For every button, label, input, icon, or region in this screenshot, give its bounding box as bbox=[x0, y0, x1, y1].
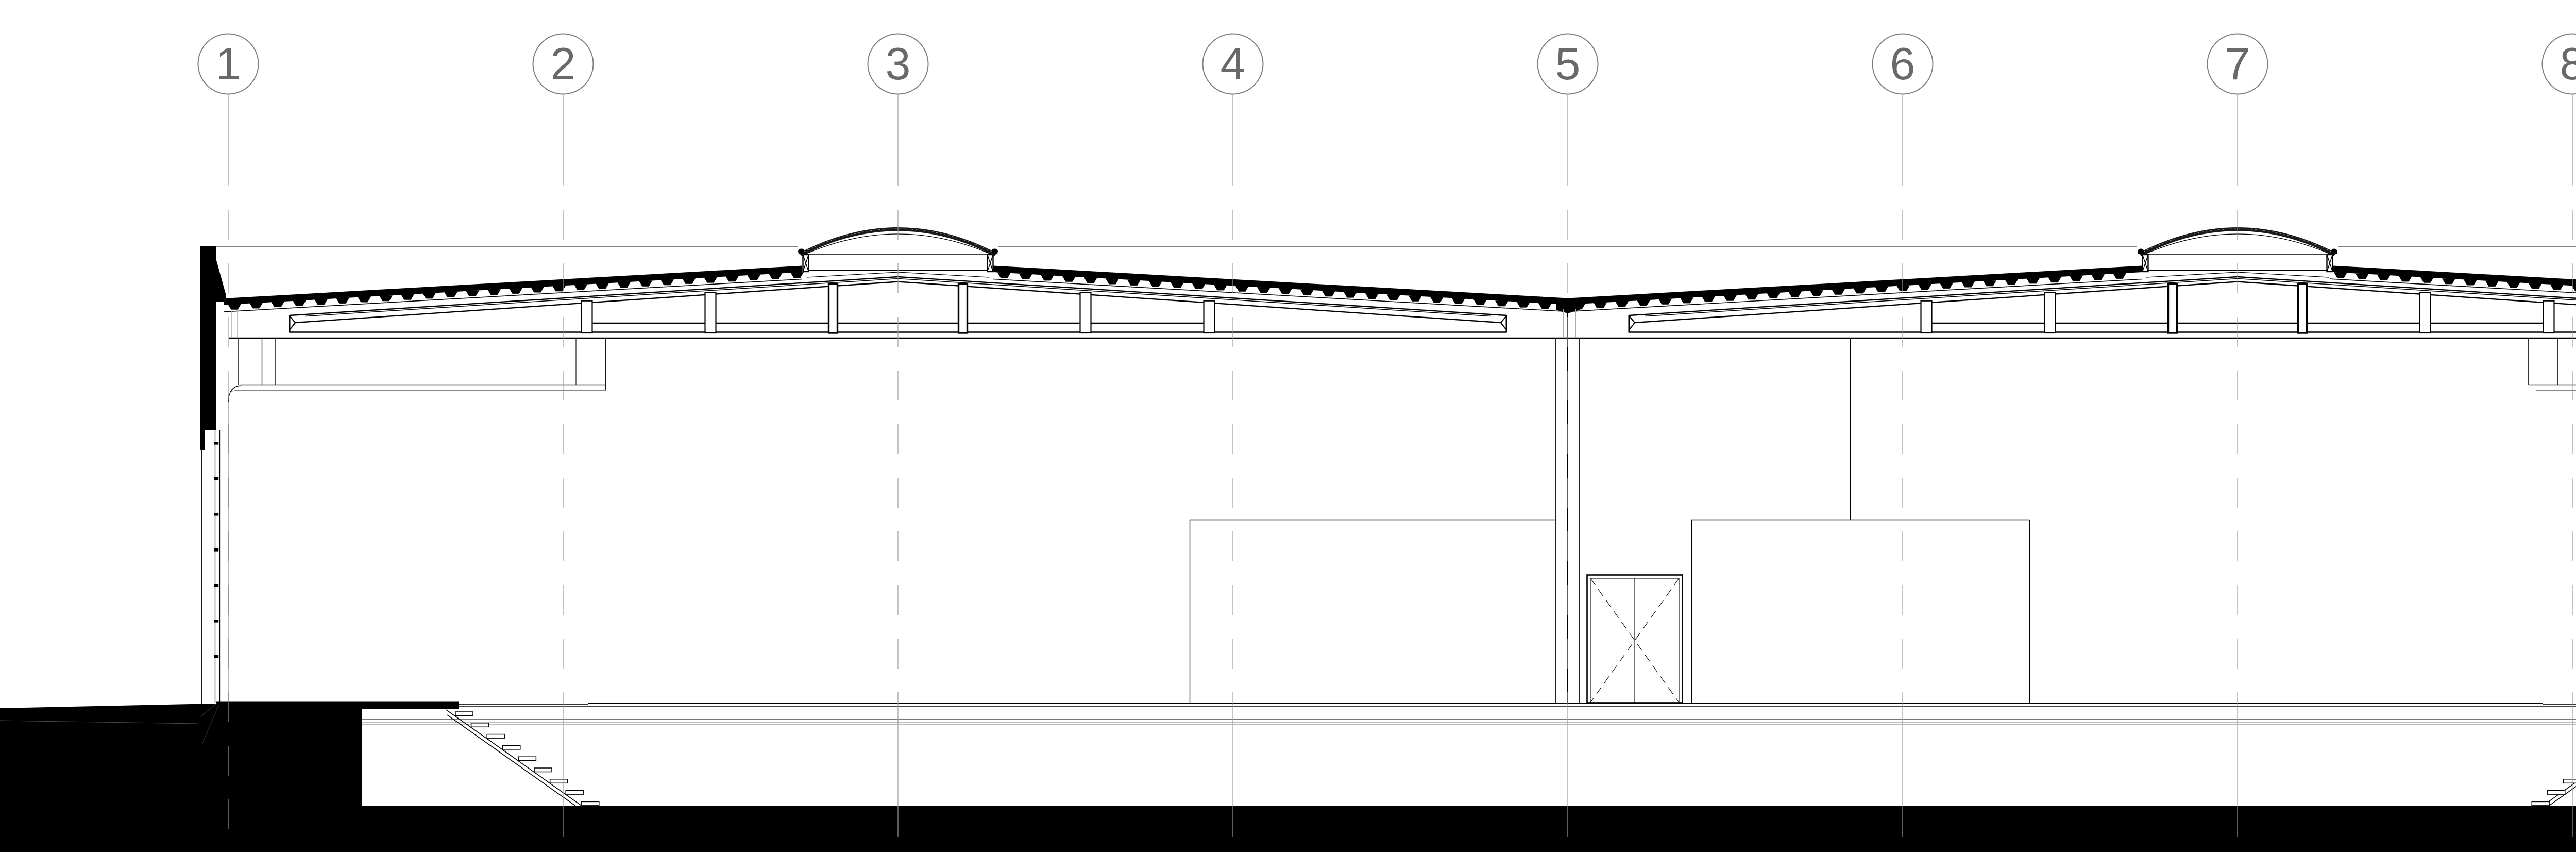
svg-text:3: 3 bbox=[886, 38, 911, 89]
svg-text:7: 7 bbox=[2225, 38, 2250, 89]
svg-text:6: 6 bbox=[1890, 38, 1916, 89]
svg-text:2: 2 bbox=[551, 38, 576, 89]
svg-text:4: 4 bbox=[1221, 38, 1246, 89]
svg-text:1: 1 bbox=[216, 38, 241, 89]
svg-text:5: 5 bbox=[1555, 38, 1581, 89]
svg-text:8: 8 bbox=[2560, 38, 2576, 89]
